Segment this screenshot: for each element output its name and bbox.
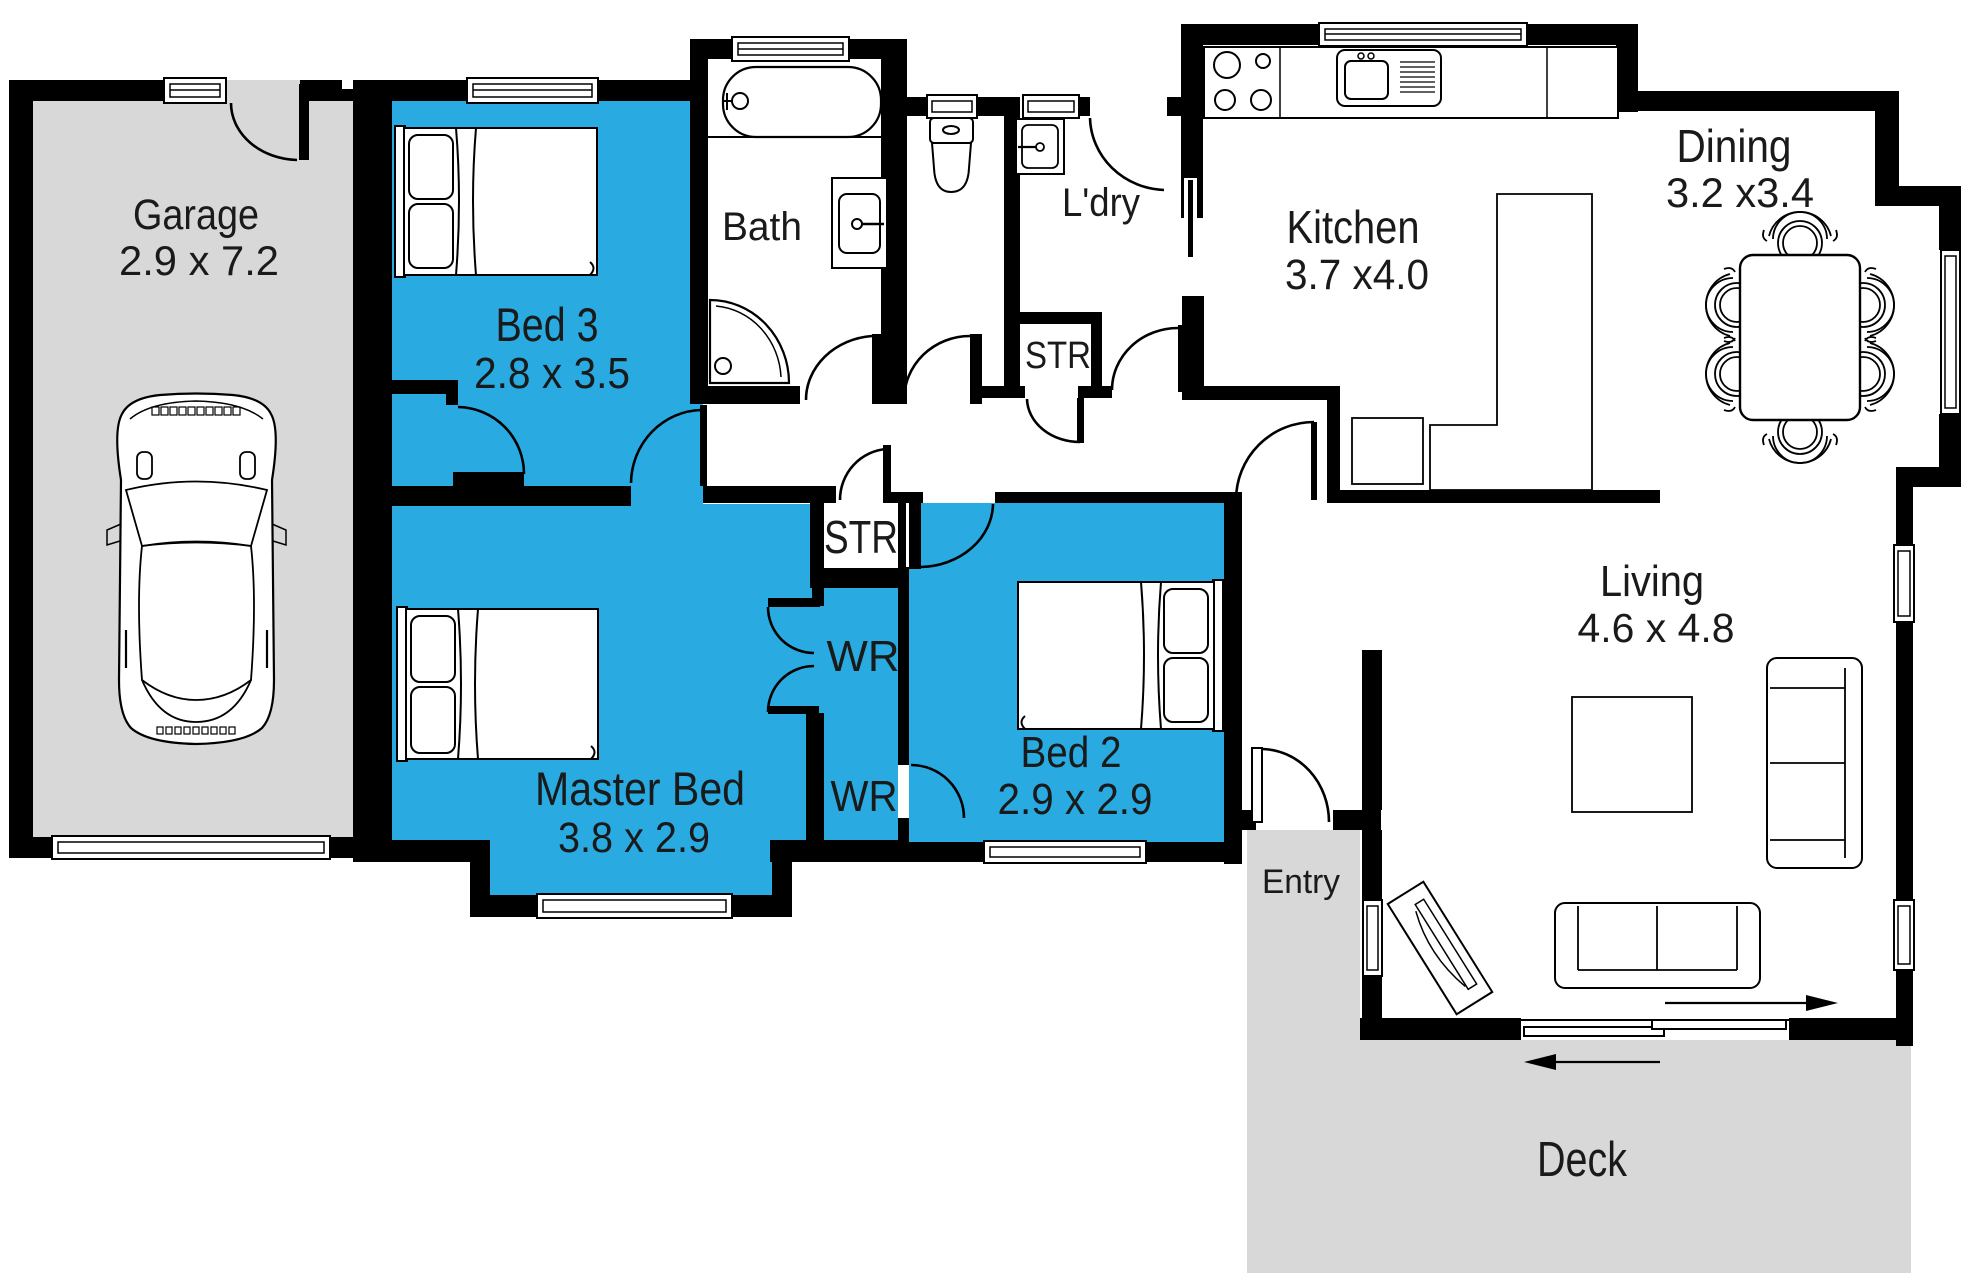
svg-text:Kitchen: Kitchen [1287,201,1420,253]
svg-text:Master Bed: Master Bed [535,762,745,815]
svg-text:WR: WR [827,632,900,681]
svg-text:WR: WR [831,772,898,821]
svg-text:Bed 3: Bed 3 [496,298,599,351]
svg-text:STR: STR [824,511,898,563]
svg-text:L'dry: L'dry [1062,181,1140,225]
svg-text:3.2 x3.4: 3.2 x3.4 [1666,169,1814,216]
svg-text:STR: STR [1025,335,1091,377]
svg-text:Dining: Dining [1677,120,1792,172]
svg-text:3.8 x 2.9: 3.8 x 2.9 [558,814,710,862]
svg-text:Living: Living [1600,557,1704,606]
svg-text:Garage: Garage [133,191,259,239]
svg-text:2.9 x 2.9: 2.9 x 2.9 [998,775,1153,824]
svg-text:Bath: Bath [722,205,802,249]
svg-text:2.8 x 3.5: 2.8 x 3.5 [474,349,630,398]
svg-text:Entry: Entry [1262,863,1340,901]
svg-text:Bed 2: Bed 2 [1021,728,1122,777]
svg-text:Deck: Deck [1537,1133,1627,1187]
svg-text:4.6 x 4.8: 4.6 x 4.8 [1578,605,1735,651]
svg-text:2.9 x 7.2: 2.9 x 7.2 [119,237,279,284]
svg-text:3.7 x4.0: 3.7 x4.0 [1285,251,1429,299]
